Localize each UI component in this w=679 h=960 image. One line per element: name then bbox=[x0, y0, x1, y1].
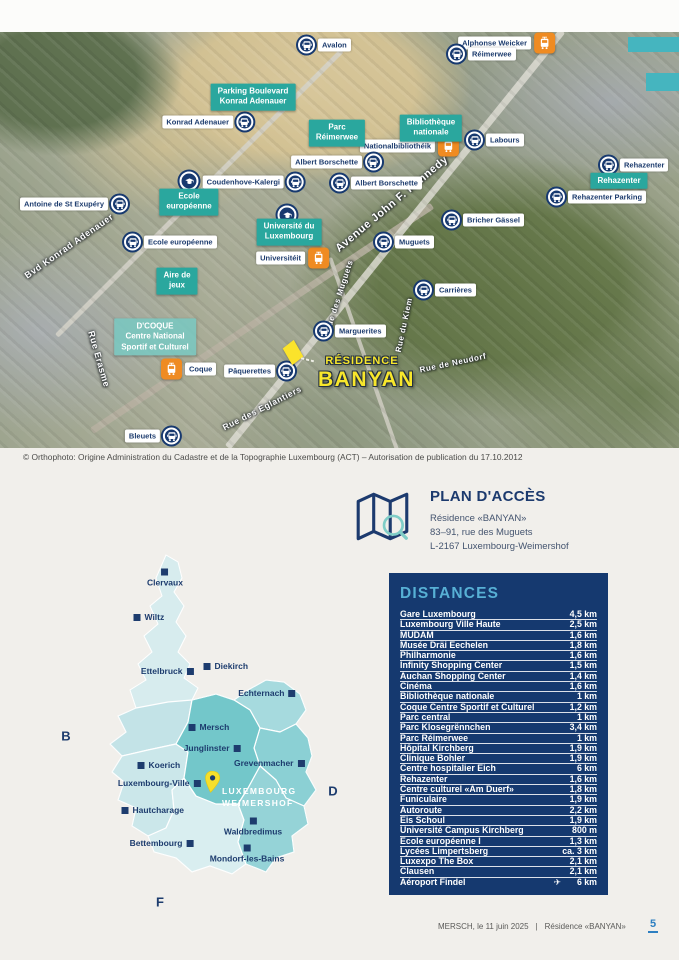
transit-icon bbox=[111, 196, 128, 213]
city-marker-square bbox=[244, 845, 251, 852]
distance-place: Eis Schoul bbox=[400, 816, 570, 825]
city-marker-square bbox=[161, 569, 168, 576]
transit-stop: Rehazenter bbox=[600, 157, 668, 174]
distance-place: Clausen bbox=[400, 867, 570, 876]
distance-place: Luxexpo The Box bbox=[400, 857, 570, 866]
transit-stop: Bleuets bbox=[125, 428, 180, 445]
transit-stop: Antoine de St Exupéry bbox=[20, 196, 128, 213]
poi-line: Sportif et Culturel bbox=[121, 342, 189, 352]
stop-label: Coudenhove-Kalergi bbox=[203, 176, 284, 189]
access-residence-line: Résidence «BANYAN» bbox=[430, 512, 569, 526]
city-name: Clervaux bbox=[147, 578, 183, 588]
distance-value: 1,8 km bbox=[570, 785, 597, 794]
tram-glyph bbox=[538, 37, 551, 50]
copyright-line: © Orthophoto: Origine Administration du … bbox=[23, 452, 523, 462]
city-label: Junglinster bbox=[184, 743, 241, 753]
distance-value: 6 km bbox=[577, 764, 597, 773]
distance-value: ca. 3 km bbox=[562, 847, 597, 856]
city-label: Luxembourg-Ville bbox=[118, 778, 201, 788]
stop-label: Konrad Adenauer bbox=[162, 116, 233, 129]
tram-glyph bbox=[442, 140, 455, 153]
distance-place: Autoroute bbox=[400, 806, 570, 815]
transit-stop: Albert Borschette bbox=[331, 175, 422, 192]
street-label: Rue du Kiem bbox=[394, 297, 414, 353]
transit-icon bbox=[534, 33, 555, 54]
poi-line: jeux bbox=[163, 281, 190, 291]
city-marker-square bbox=[250, 818, 257, 825]
distance-value: 1,9 km bbox=[570, 744, 597, 753]
poi-box: Université du Luxembourg bbox=[257, 219, 322, 246]
transit-icon bbox=[466, 132, 483, 149]
poi-box: Rehazenter bbox=[590, 173, 647, 189]
location-pin-icon bbox=[203, 770, 222, 794]
poi-line: Aire de bbox=[163, 271, 190, 281]
residence-name: BANYAN bbox=[318, 368, 406, 392]
distance-value: 6 km bbox=[577, 878, 597, 887]
residence-banyan-title: RÉSIDENCE BANYAN bbox=[318, 355, 406, 392]
bus-glyph bbox=[604, 160, 614, 170]
city-marker-square bbox=[298, 760, 305, 767]
distance-value: 1 km bbox=[577, 713, 597, 722]
brochure-page: Avenue John F. KennedyBvd Konrad Adenaue… bbox=[0, 0, 679, 960]
stop-label: Albert Borschette bbox=[291, 156, 362, 169]
city-marker-square bbox=[134, 614, 141, 621]
transit-stop: Universitéit bbox=[256, 248, 329, 269]
highlight-line-1: LUXEMBOURG bbox=[222, 785, 296, 797]
page-number: 5 bbox=[648, 918, 658, 933]
stop-label: Antoine de St Exupéry bbox=[20, 198, 108, 211]
transit-icon bbox=[415, 282, 432, 299]
residence-connector-dash bbox=[301, 357, 316, 363]
transit-icon bbox=[315, 323, 332, 340]
stop-label: Rehazenter Parking bbox=[568, 191, 646, 204]
poi-line: européenne bbox=[166, 202, 211, 212]
distance-value: 1,6 km bbox=[570, 682, 597, 691]
footer-residence: Résidence «BANYAN» bbox=[545, 922, 626, 931]
graduation-cap-glyph bbox=[184, 176, 194, 186]
transit-stop: Konrad Adenauer bbox=[162, 114, 253, 131]
folded-map-icon bbox=[352, 487, 414, 549]
access-title: PLAN D'ACCÈS bbox=[430, 488, 569, 505]
poi-line: Luxembourg bbox=[264, 232, 315, 242]
city-label: Waldbredimus bbox=[224, 818, 282, 837]
distance-value: 1,9 km bbox=[570, 816, 597, 825]
poi-box: Bibliothèque nationale bbox=[400, 115, 462, 142]
distance-place: Clinique Bohler bbox=[400, 754, 570, 763]
footer: MERSCH, le 11 juin 2025 | Résidence «BAN… bbox=[438, 922, 626, 931]
transit-stop: Labours bbox=[466, 132, 524, 149]
city-marker-square bbox=[138, 762, 145, 769]
transit-stop: Pâquerettes bbox=[224, 363, 295, 380]
distance-place: Philharmonie bbox=[400, 651, 570, 660]
poi-box: Parc Réimerwee bbox=[309, 120, 365, 147]
distance-place: Parc central bbox=[400, 713, 577, 722]
poi-box: Aire de jeux bbox=[156, 268, 197, 295]
city-marker-square bbox=[189, 724, 196, 731]
bus-glyph bbox=[369, 157, 379, 167]
neighbour-country-letter: D bbox=[328, 784, 337, 799]
city-name: Echternach bbox=[238, 688, 284, 698]
footer-date: MERSCH, le 11 juin 2025 bbox=[438, 922, 529, 931]
bus-glyph bbox=[282, 366, 292, 376]
distance-value: 2,2 km bbox=[570, 806, 597, 815]
stop-label: Ecole européenne bbox=[144, 236, 217, 249]
tram-glyph bbox=[165, 363, 178, 376]
distance-place: Infinity Shopping Center bbox=[400, 661, 570, 670]
poi-box: Ecole européenne bbox=[159, 189, 218, 216]
footer-separator: | bbox=[536, 922, 538, 931]
city-name: Mersch bbox=[200, 722, 230, 732]
bus-glyph bbox=[302, 40, 312, 50]
transit-stop: Avalon bbox=[298, 37, 351, 54]
stop-label: Marguerites bbox=[335, 325, 386, 338]
city-name: Bettembourg bbox=[130, 838, 183, 848]
distance-place: MUDAM bbox=[400, 631, 570, 640]
teal-deco-rect bbox=[628, 37, 679, 52]
city-label: Mersch bbox=[189, 722, 230, 732]
distance-place: Cinéma bbox=[400, 682, 570, 691]
city-name: Grevenmacher bbox=[234, 758, 294, 768]
distance-value: 4,5 km bbox=[570, 610, 597, 619]
city-label: Diekirch bbox=[204, 661, 249, 671]
stop-label: Réimerwee bbox=[468, 48, 516, 61]
page-top-margin bbox=[0, 0, 679, 32]
distance-value: 800 m bbox=[572, 826, 597, 835]
stop-label: Muguets bbox=[395, 236, 434, 249]
bus-glyph bbox=[128, 237, 138, 247]
distance-place: Rehazenter bbox=[400, 775, 570, 784]
city-label: Hautcharage bbox=[122, 805, 185, 815]
distance-place: Centre culturel «Am Duerf» bbox=[400, 785, 570, 794]
stop-label: Bricher Gässel bbox=[463, 214, 524, 227]
neighbour-country-letter: F bbox=[156, 895, 164, 910]
luxembourg-map: Clervaux Wiltz Ettelbruck Diekirch bbox=[30, 552, 360, 947]
bus-glyph bbox=[419, 285, 429, 295]
transit-icon bbox=[308, 248, 329, 269]
city-label: Echternach bbox=[238, 688, 295, 698]
city-label: Clervaux bbox=[147, 569, 183, 588]
city-marker-square bbox=[187, 840, 194, 847]
distance-place: Coque Centre Sportif et Culturel bbox=[400, 703, 570, 712]
poi-line: Parking Boulevard bbox=[218, 87, 289, 97]
distance-value: 1,9 km bbox=[570, 754, 597, 763]
city-label: Grevenmacher bbox=[234, 758, 305, 768]
distances-panel: DISTANCES Gare Luxembourg 4,5 km Luxembo… bbox=[389, 573, 608, 895]
bus-glyph bbox=[335, 178, 345, 188]
bus-glyph bbox=[552, 192, 562, 202]
city-name: Mondorf-les-Bains bbox=[210, 854, 285, 864]
distance-place: Parc Klosegrënnchen bbox=[400, 723, 570, 732]
transit-stop: Rehazenter Parking bbox=[548, 189, 646, 206]
transit-stop: Marguerites bbox=[315, 323, 386, 340]
city-label: Koerich bbox=[138, 760, 181, 770]
stop-label: Albert Borschette bbox=[351, 177, 422, 190]
transit-stop: Bricher Gässel bbox=[443, 212, 524, 229]
stop-label: Nationalbibliothéik bbox=[360, 140, 435, 153]
city-marker-square bbox=[187, 668, 194, 675]
distances-title: DISTANCES bbox=[400, 585, 597, 603]
distance-value: 2,1 km bbox=[570, 867, 597, 876]
distance-place: Ecole européenne I bbox=[400, 837, 570, 846]
distance-place: Hôpital Kirchberg bbox=[400, 744, 570, 753]
poi-line: Bibliothèque bbox=[407, 118, 455, 128]
poi-line: Ecole bbox=[166, 192, 211, 202]
transit-icon bbox=[448, 46, 465, 63]
distance-place: Centre hospitalier Eich bbox=[400, 764, 577, 773]
distance-place: Université Campus Kirchberg bbox=[400, 826, 572, 835]
city-label: Mondorf-les-Bains bbox=[210, 845, 285, 864]
residence-label: RÉSIDENCE bbox=[318, 355, 406, 367]
transit-stop: Ecole européenne bbox=[124, 234, 217, 251]
transit-icon bbox=[124, 234, 141, 251]
distance-place: Aéroport Findel bbox=[400, 878, 554, 887]
transit-icon bbox=[600, 157, 617, 174]
poi-line: Rehazenter bbox=[597, 176, 640, 186]
stop-label: Pâquerettes bbox=[224, 365, 275, 378]
tram-glyph bbox=[312, 252, 325, 265]
transit-icon bbox=[161, 359, 182, 380]
distance-row: Aéroport Findel 6 km bbox=[400, 878, 597, 887]
poi-line: Centre National bbox=[121, 332, 189, 342]
transit-icon bbox=[298, 37, 315, 54]
city-marker-square bbox=[122, 807, 129, 814]
stop-label: Avalon bbox=[318, 39, 351, 52]
city-name: Ettelbruck bbox=[141, 666, 183, 676]
transit-stop: Réimerwee bbox=[448, 46, 516, 63]
bus-glyph bbox=[470, 135, 480, 145]
plane-icon bbox=[554, 879, 561, 888]
city-name: Hautcharage bbox=[133, 805, 185, 815]
poi-line: nationale bbox=[407, 128, 455, 138]
city-marker-square bbox=[234, 745, 241, 752]
poi-line: D'COQUE bbox=[121, 321, 189, 331]
city-marker-square bbox=[194, 780, 201, 787]
bus-glyph bbox=[167, 431, 177, 441]
highlight-district-label: LUXEMBOURG WEIMERSHOF bbox=[222, 785, 296, 810]
teal-deco-rect bbox=[646, 73, 679, 91]
city-name: Waldbredimus bbox=[224, 827, 282, 837]
bus-glyph bbox=[291, 177, 301, 187]
transit-icon bbox=[443, 212, 460, 229]
transit-icon bbox=[236, 114, 253, 131]
distance-value: 1,9 km bbox=[570, 795, 597, 804]
neighbour-country-letter: B bbox=[61, 729, 70, 744]
access-city-line: L-2167 Luxembourg-Weimershof bbox=[430, 540, 569, 554]
distance-value: 2,1 km bbox=[570, 857, 597, 866]
street-label: Rue des Eglantiers bbox=[221, 384, 303, 433]
transit-icon bbox=[287, 174, 304, 191]
distance-place: Musée Dräi Eechelen bbox=[400, 641, 570, 650]
poi-box: D'COQUE Centre National Sportif et Cultu… bbox=[114, 318, 196, 355]
city-marker-square bbox=[204, 663, 211, 670]
poi-line: Konrad Adenauer bbox=[218, 97, 289, 107]
transit-stop: Muguets bbox=[375, 234, 434, 251]
country-outline bbox=[88, 552, 343, 882]
distance-value: 2,5 km bbox=[570, 620, 597, 629]
city-name: Diekirch bbox=[215, 661, 249, 671]
distance-place: Auchan Shopping Center bbox=[400, 672, 570, 681]
distance-place: Luxembourg Ville Haute bbox=[400, 620, 570, 629]
transit-stop: Carrières bbox=[415, 282, 476, 299]
city-name: Junglinster bbox=[184, 743, 230, 753]
distance-place: Funiculaire bbox=[400, 795, 570, 804]
aerial-map: Avenue John F. KennedyBvd Konrad Adenaue… bbox=[0, 32, 679, 448]
bus-glyph bbox=[447, 215, 457, 225]
bus-glyph bbox=[115, 199, 125, 209]
distance-value: 1 km bbox=[577, 692, 597, 701]
bus-glyph bbox=[452, 49, 462, 59]
distance-place: Parc Réimerwee bbox=[400, 734, 577, 743]
stop-label: Universitéit bbox=[256, 252, 305, 265]
bus-glyph bbox=[379, 237, 389, 247]
poi-line: Parc bbox=[316, 123, 358, 133]
distance-place: Lycées Limpertsberg bbox=[400, 847, 562, 856]
street-label: Rue Erasme bbox=[86, 330, 112, 389]
city-label: Wiltz bbox=[134, 612, 165, 622]
distance-value: 1,6 km bbox=[570, 775, 597, 784]
distance-value: 1,5 km bbox=[570, 661, 597, 670]
poi-line: Réimerwee bbox=[316, 133, 358, 143]
stop-label: Labours bbox=[486, 134, 524, 147]
highlight-line-2: WEIMERSHOF bbox=[222, 797, 296, 809]
city-name: Luxembourg-Ville bbox=[118, 778, 190, 788]
city-marker-square bbox=[289, 690, 296, 697]
bus-glyph bbox=[319, 326, 329, 336]
stop-label: Coque bbox=[185, 363, 216, 376]
distance-value: 3,4 km bbox=[570, 723, 597, 732]
city-name: Koerich bbox=[149, 760, 181, 770]
city-label: Bettembourg bbox=[130, 838, 194, 848]
distances-rows: Gare Luxembourg 4,5 km Luxembourg Ville … bbox=[400, 610, 597, 887]
city-name: Wiltz bbox=[145, 612, 165, 622]
street-label: Bvd Konrad Adenauer bbox=[23, 211, 116, 280]
poi-box: Parking Boulevard Konrad Adenauer bbox=[211, 84, 296, 111]
distance-value: 1,2 km bbox=[570, 703, 597, 712]
transit-icon bbox=[365, 154, 382, 171]
distance-value: 1,4 km bbox=[570, 672, 597, 681]
transit-icon bbox=[163, 428, 180, 445]
distance-value: 1,3 km bbox=[570, 837, 597, 846]
transit-stop: Albert Borschette bbox=[291, 154, 382, 171]
stop-label: Rehazenter bbox=[620, 159, 668, 172]
transit-icon bbox=[375, 234, 392, 251]
distance-value: 1,6 km bbox=[570, 631, 597, 640]
stop-label: Carrières bbox=[435, 284, 476, 297]
transit-icon bbox=[331, 175, 348, 192]
transit-icon bbox=[278, 363, 295, 380]
distance-value: 1,8 km bbox=[570, 641, 597, 650]
distance-value: 1,6 km bbox=[570, 651, 597, 660]
distance-place: Gare Luxembourg bbox=[400, 610, 570, 619]
distance-place: Bibliothèque nationale bbox=[400, 692, 577, 701]
stop-label: Bleuets bbox=[125, 430, 160, 443]
transit-stop: Coque bbox=[161, 359, 216, 380]
distance-row: Université Campus Kirchberg 800 m bbox=[400, 826, 597, 836]
bus-glyph bbox=[240, 117, 250, 127]
poi-line: Université du bbox=[264, 222, 315, 232]
city-label: Ettelbruck bbox=[141, 666, 194, 676]
access-street-line: 83–91, rue des Muguets bbox=[430, 526, 569, 540]
transit-icon bbox=[548, 189, 565, 206]
access-block: PLAN D'ACCÈS Résidence «BANYAN» 83–91, r… bbox=[430, 488, 569, 554]
street-label: Rue de Neudorf bbox=[419, 352, 487, 375]
distance-value: 1 km bbox=[577, 734, 597, 743]
